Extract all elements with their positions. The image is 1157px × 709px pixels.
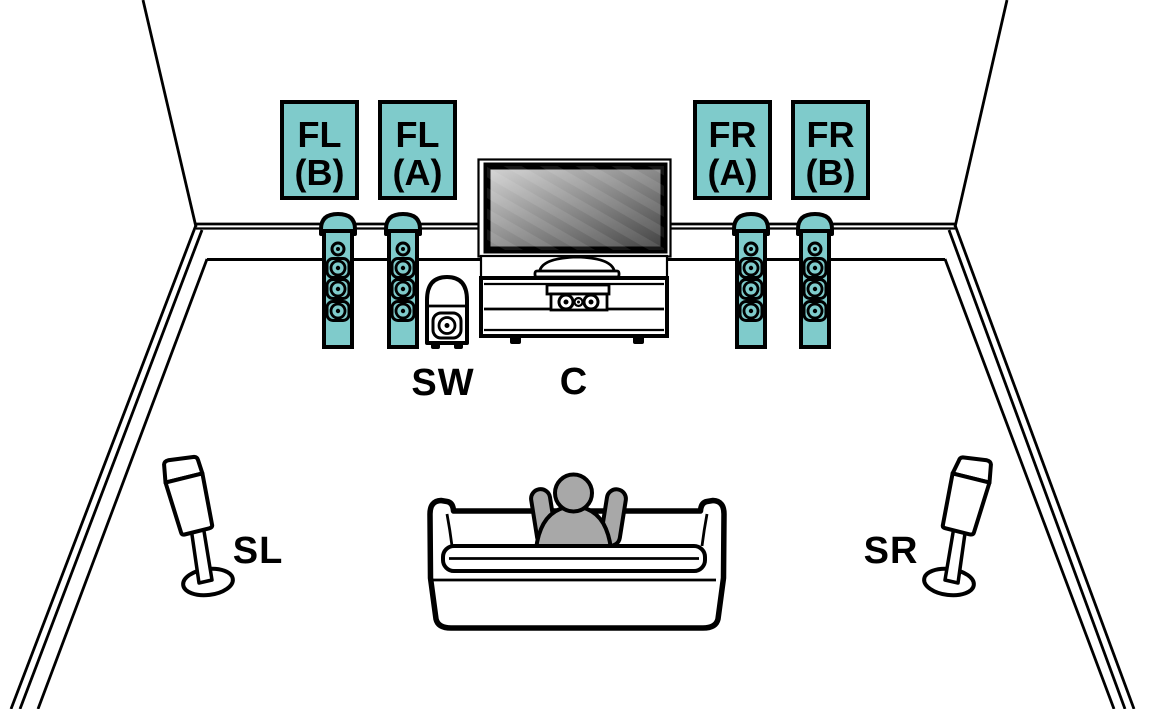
label-subwoofer: SW <box>411 362 474 404</box>
tv-unit <box>479 160 671 345</box>
label-center: C <box>560 361 588 403</box>
tower-speaker-fr-a <box>734 214 768 347</box>
left-wall-corner-edge <box>143 0 196 227</box>
sofa <box>430 475 724 629</box>
label-surround-left: SL <box>233 530 284 572</box>
label-box-front-left-b: FL(B) <box>282 102 357 198</box>
tower-speaker-fr-b <box>798 214 832 347</box>
listener-head <box>555 475 592 512</box>
sl-head <box>160 453 215 536</box>
label-surround-right: SR <box>864 530 919 572</box>
label-text-front-right-a: FR(A) <box>708 114 758 193</box>
sr-head <box>939 453 994 536</box>
surround-left-speaker <box>160 453 234 598</box>
speaker-layout-diagram: FL(B) FL(A) FR(A) FR(B) <box>0 0 1157 709</box>
label-text-front-left-b: FL(B) <box>295 114 345 193</box>
label-text-front-right-b: FR(B) <box>806 114 856 193</box>
label-box-front-right-a: FR(A) <box>695 102 770 198</box>
surround-right-speaker <box>923 453 995 598</box>
tower-speaker-fl-a <box>386 214 420 347</box>
center-speaker <box>547 285 609 310</box>
tower-speaker-fl-b <box>321 214 355 347</box>
label-text-front-left-a: FL(A) <box>393 114 443 193</box>
subwoofer-speaker <box>427 277 467 349</box>
right-wall-corner-edge <box>955 0 1007 227</box>
listener-person <box>530 475 628 550</box>
room-canvas: FL(B) FL(A) FR(A) FR(B) <box>0 0 1157 709</box>
label-box-front-left-a: FL(A) <box>380 102 455 198</box>
label-box-front-right-b: FR(B) <box>793 102 868 198</box>
